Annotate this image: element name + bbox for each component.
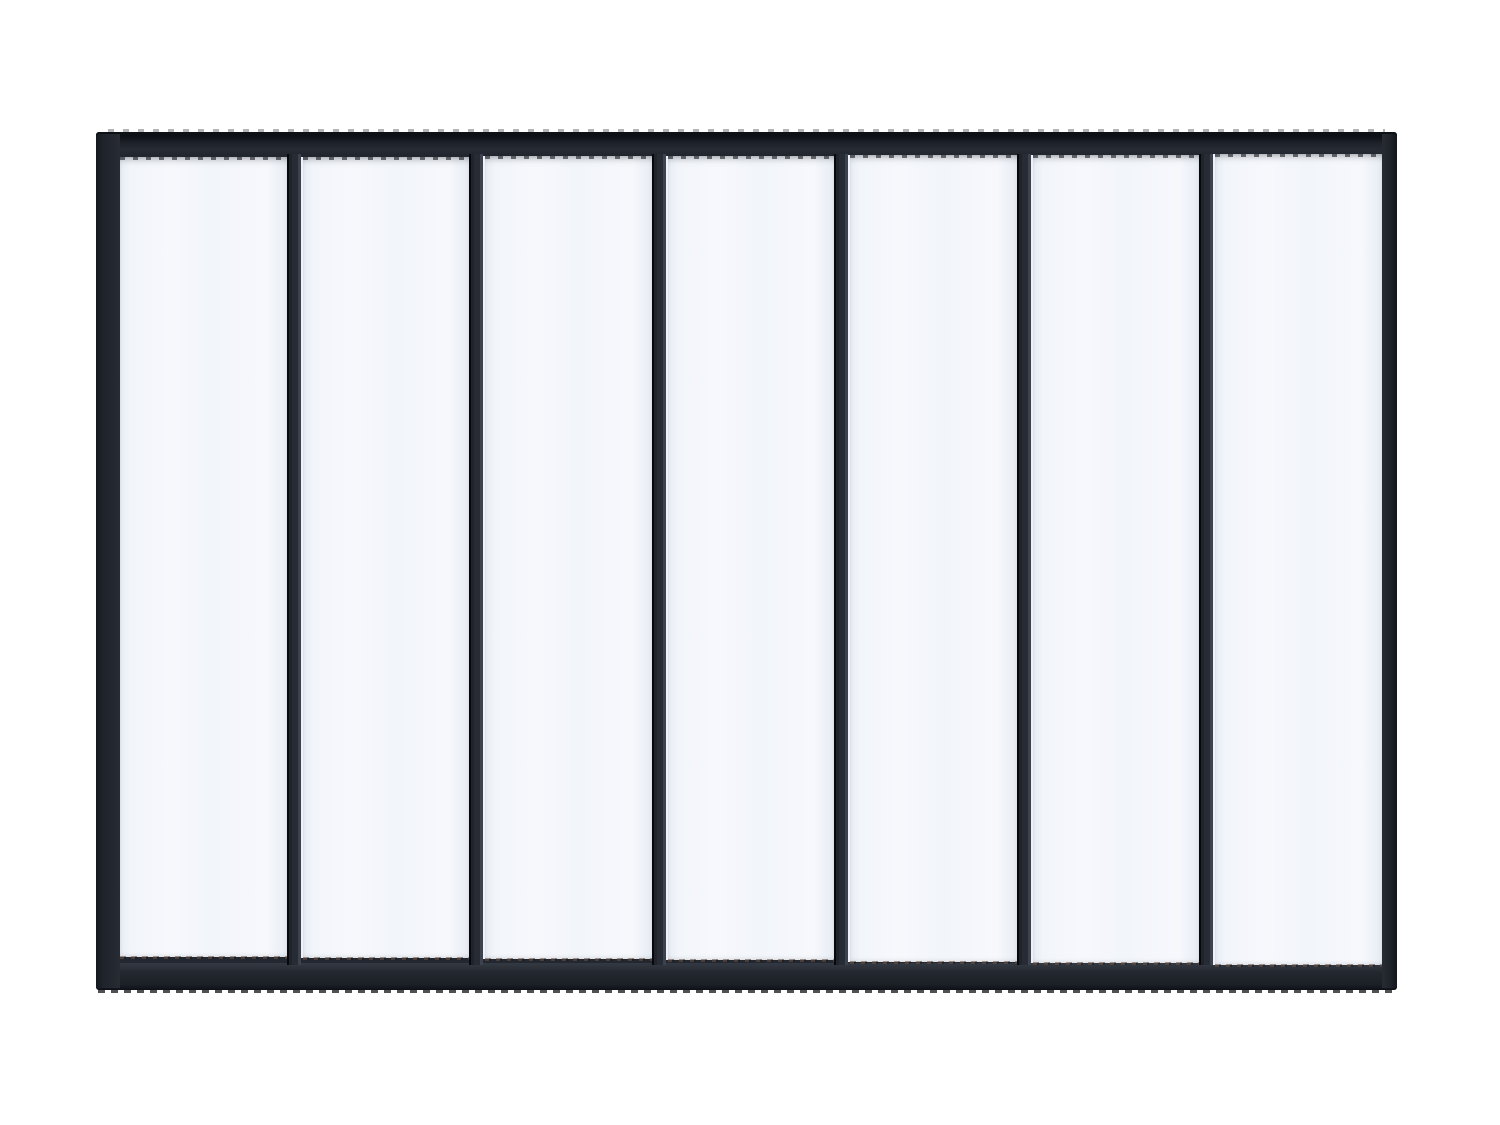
- mullion-5: [1017, 154, 1031, 965]
- product-photo-canvas: [0, 0, 1500, 1125]
- glass-pane-7: [1213, 154, 1382, 965]
- frame-left-stile: [96, 134, 120, 988]
- mullion-1: [287, 154, 301, 965]
- mullion-3: [652, 154, 666, 965]
- glass-pane-6: [1031, 155, 1200, 963]
- frame-right-stile: [1382, 134, 1397, 988]
- mullion-6: [1199, 154, 1213, 965]
- glass-partition: [96, 132, 1397, 990]
- glass-pane-1: [120, 157, 287, 957]
- frame-bottom-rail: [96, 963, 1397, 990]
- glass-pane-4: [666, 156, 835, 960]
- mullion-4: [834, 154, 848, 965]
- glass-pane-2: [301, 157, 470, 958]
- frame-top-rail: [96, 132, 1397, 156]
- glass-pane-5: [848, 155, 1017, 962]
- mullion-2: [469, 154, 483, 965]
- glass-pane-3: [483, 156, 652, 959]
- glass-row: [120, 154, 1382, 965]
